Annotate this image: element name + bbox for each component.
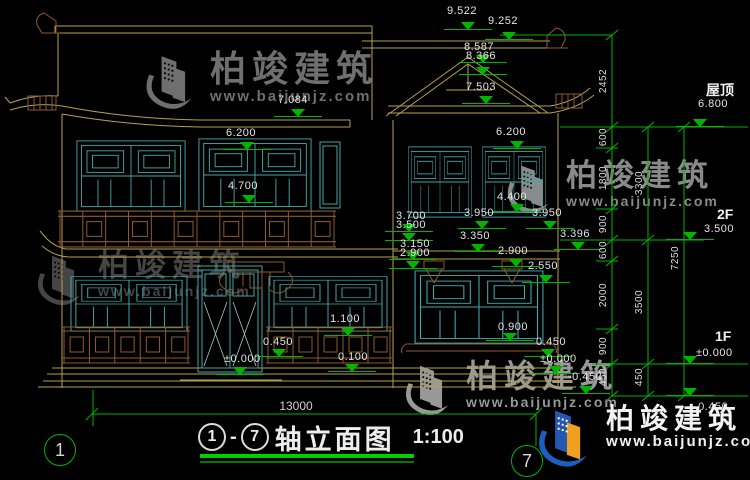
balcony-railing (58, 211, 336, 247)
watermark-bottom-right: 柏竣建筑 www.baijunjz.com (530, 404, 750, 470)
title-dash: - (230, 426, 237, 449)
baijun-logo-icon-color (530, 404, 596, 470)
title-axis-bubble-start: 1 (198, 423, 226, 451)
title-axis-bubble-end: 7 (241, 423, 269, 451)
window-sill (402, 344, 557, 353)
title-text: 轴立面图 (275, 418, 395, 457)
porch-fence (62, 327, 190, 363)
drawing-title: 1 - 7 轴立面图 1:100 (198, 420, 464, 454)
title-underline-thin (200, 461, 414, 463)
watermark-url: www.baijunjz.com (606, 433, 750, 450)
porch-fence (266, 327, 392, 363)
dimension-lines (86, 30, 748, 446)
title-underline (200, 454, 414, 458)
cad-elevation-canvas: 柏竣建筑 www.baijunjz.com 柏竣建筑 www.baijunjz.… (0, 0, 750, 480)
entry-door (198, 266, 262, 372)
title-scale: 1:100 (413, 426, 464, 449)
watermark-brand: 柏竣建筑 (606, 404, 750, 433)
